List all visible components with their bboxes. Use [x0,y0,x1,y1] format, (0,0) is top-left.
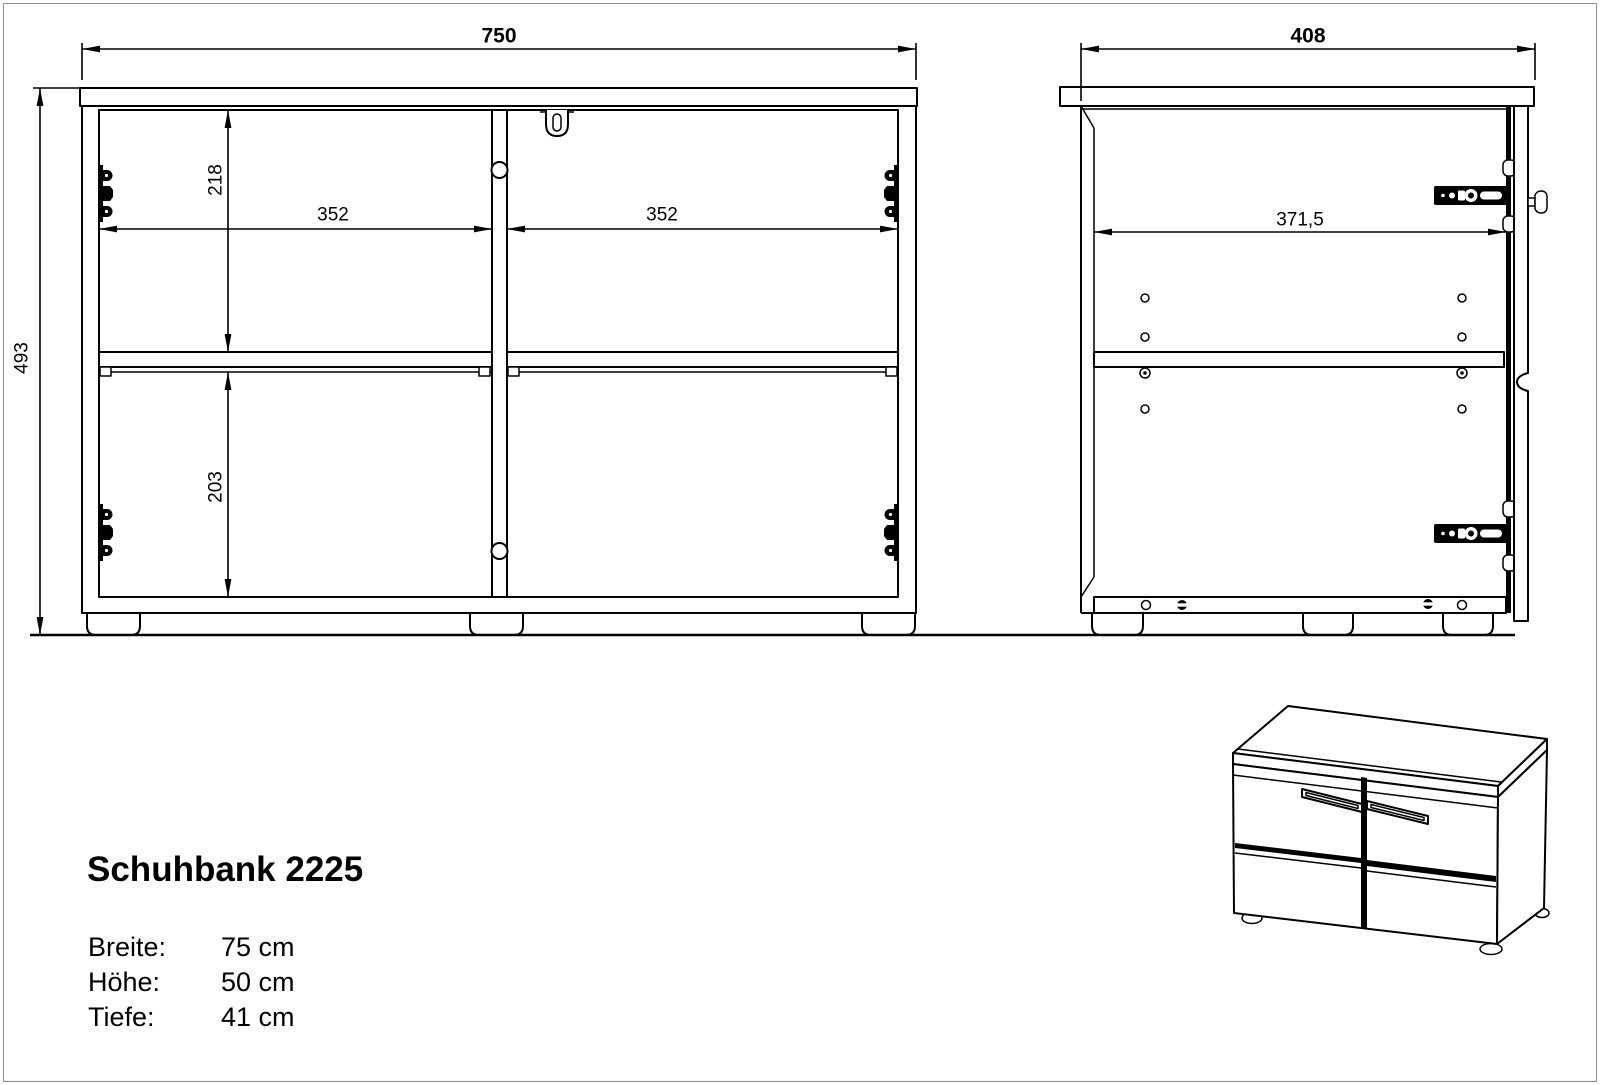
dim-side-overall-depth: 408 [1290,26,1325,47]
foot [1443,613,1493,635]
drawing-canvas [0,0,1600,1085]
side-shelf [1094,352,1504,367]
hinge-icon-right-top [884,165,898,222]
side-door-panel [1514,106,1528,621]
foot [1303,613,1353,635]
dim-front-upper-height: 218 [207,164,226,196]
cam-bolt-icon [492,543,508,559]
foot [1480,944,1502,955]
product-title: Schuhbank 2225 [87,852,363,887]
front-shelf-right [507,352,898,367]
product-specs: Breite: 75 cm Höhe: 50 cm Tiefe: 41 cm [88,930,295,1035]
shelf-clip [508,367,519,376]
dim-front-overall-height: 493 [13,342,32,374]
dim-front-lower-height: 203 [207,471,226,503]
hinge-icon-left-top [99,165,113,222]
spec-value: 41 cm [221,1002,295,1033]
side-top-panel [1060,87,1534,106]
front-shelf-left [99,352,492,367]
side-bottom-rail [1094,597,1506,613]
spec-value: 75 cm [221,932,295,963]
foot [470,613,523,635]
spec-row-tiefe: Tiefe: 41 cm [88,1000,295,1035]
dim-side-inner-depth: 371,5 [1276,211,1324,230]
dim-front-overall-width: 750 [481,26,516,47]
front-center-divider [492,110,507,597]
hinge-slide-icon-top [1434,186,1508,205]
shelf-clip [886,367,897,376]
shelf-clip [100,367,111,376]
shelf-clip [479,367,490,376]
side-back-chamfer-bottom [1081,577,1094,597]
foot [1092,613,1143,635]
spec-label: Tiefe: [88,1002,221,1033]
hinge-slide-icon-bottom [1434,524,1508,543]
spec-row-hoehe: Höhe: 50 cm [88,965,295,1000]
technical-drawing-sheet: 750 408 493 218 203 352 352 371,5 Schuhb… [0,0,1600,1085]
thumb-door-gap [1361,777,1367,929]
spec-value: 50 cm [221,967,295,998]
spec-label: Breite: [88,932,221,963]
cam-bolt-icon [492,162,508,178]
front-top-panel [80,88,917,106]
dim-front-right-compartment: 352 [646,206,678,225]
foot [87,613,140,635]
side-view-drawing [1060,87,1547,635]
spec-row-breite: Breite: 75 cm [88,930,295,965]
knob-icon [1528,191,1547,213]
hinge-icon-left-bottom [99,504,113,561]
product-3d-thumbnail [1233,706,1549,955]
spec-label: Höhe: [88,967,221,998]
foot [862,613,915,635]
hinge-icon-right-bottom [884,504,898,561]
dim-front-left-compartment: 352 [317,206,349,225]
